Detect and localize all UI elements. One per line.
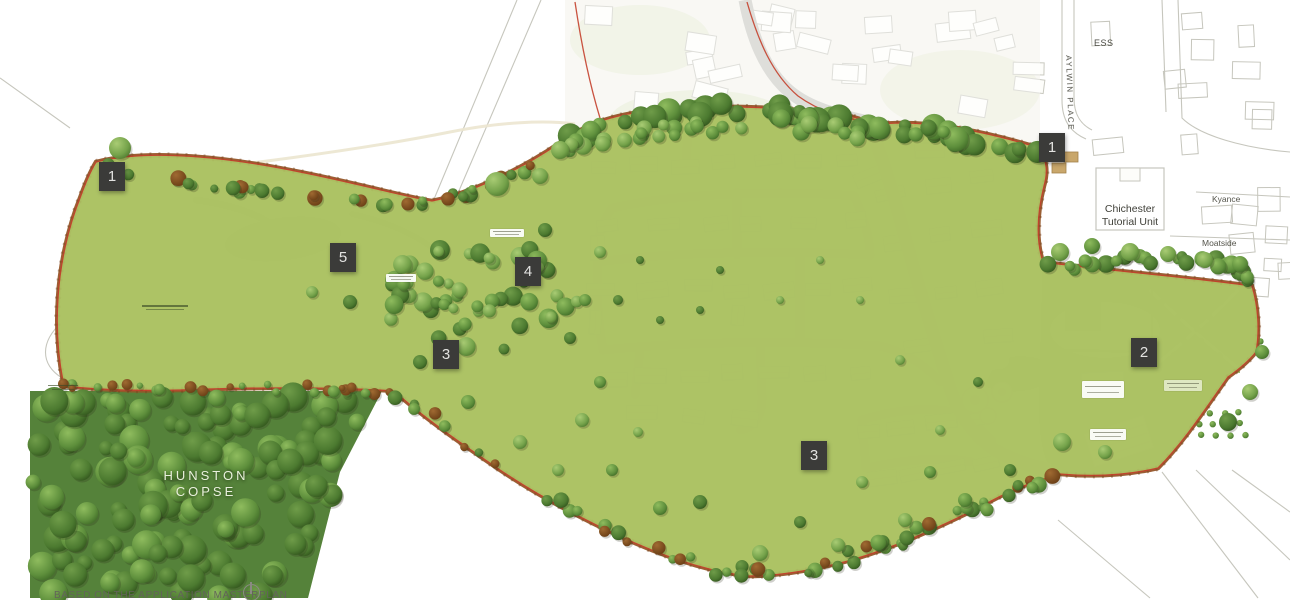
north-arrow-icon	[243, 584, 260, 600]
plan-key-marker: 5	[330, 243, 356, 272]
annotation-chip-meadow	[142, 303, 188, 312]
site-plan-illustration	[0, 0, 1290, 600]
annotation-chip-farm	[48, 382, 78, 392]
label-kyance: Kyance	[1212, 194, 1240, 204]
annotation-chip	[386, 274, 416, 282]
annotation-chip-allotments	[1164, 380, 1202, 391]
label-hunston-copse: HUNSTON COPSE	[150, 468, 262, 499]
label-ess: ESS	[1094, 38, 1114, 49]
plan-key-marker: 2	[1131, 338, 1157, 367]
masterplan-canvas: ESS AYLWIN PLACE Chichester Tutorial Uni…	[0, 0, 1290, 600]
annotation-chip	[490, 229, 524, 237]
annotation-chip-community-hub	[1082, 381, 1124, 398]
label-moatside: Moatside	[1202, 238, 1237, 248]
label-chichester-tutorial-unit: Chichester Tutorial Unit	[1089, 203, 1171, 228]
plan-key-marker: 1	[1039, 133, 1065, 162]
plan-key-marker: 3	[433, 340, 459, 369]
annotation-chip-parking	[1090, 429, 1126, 440]
plan-key-marker: 1	[99, 162, 125, 191]
plan-key-marker: 3	[801, 441, 827, 470]
plan-key-marker: 4	[515, 257, 541, 286]
